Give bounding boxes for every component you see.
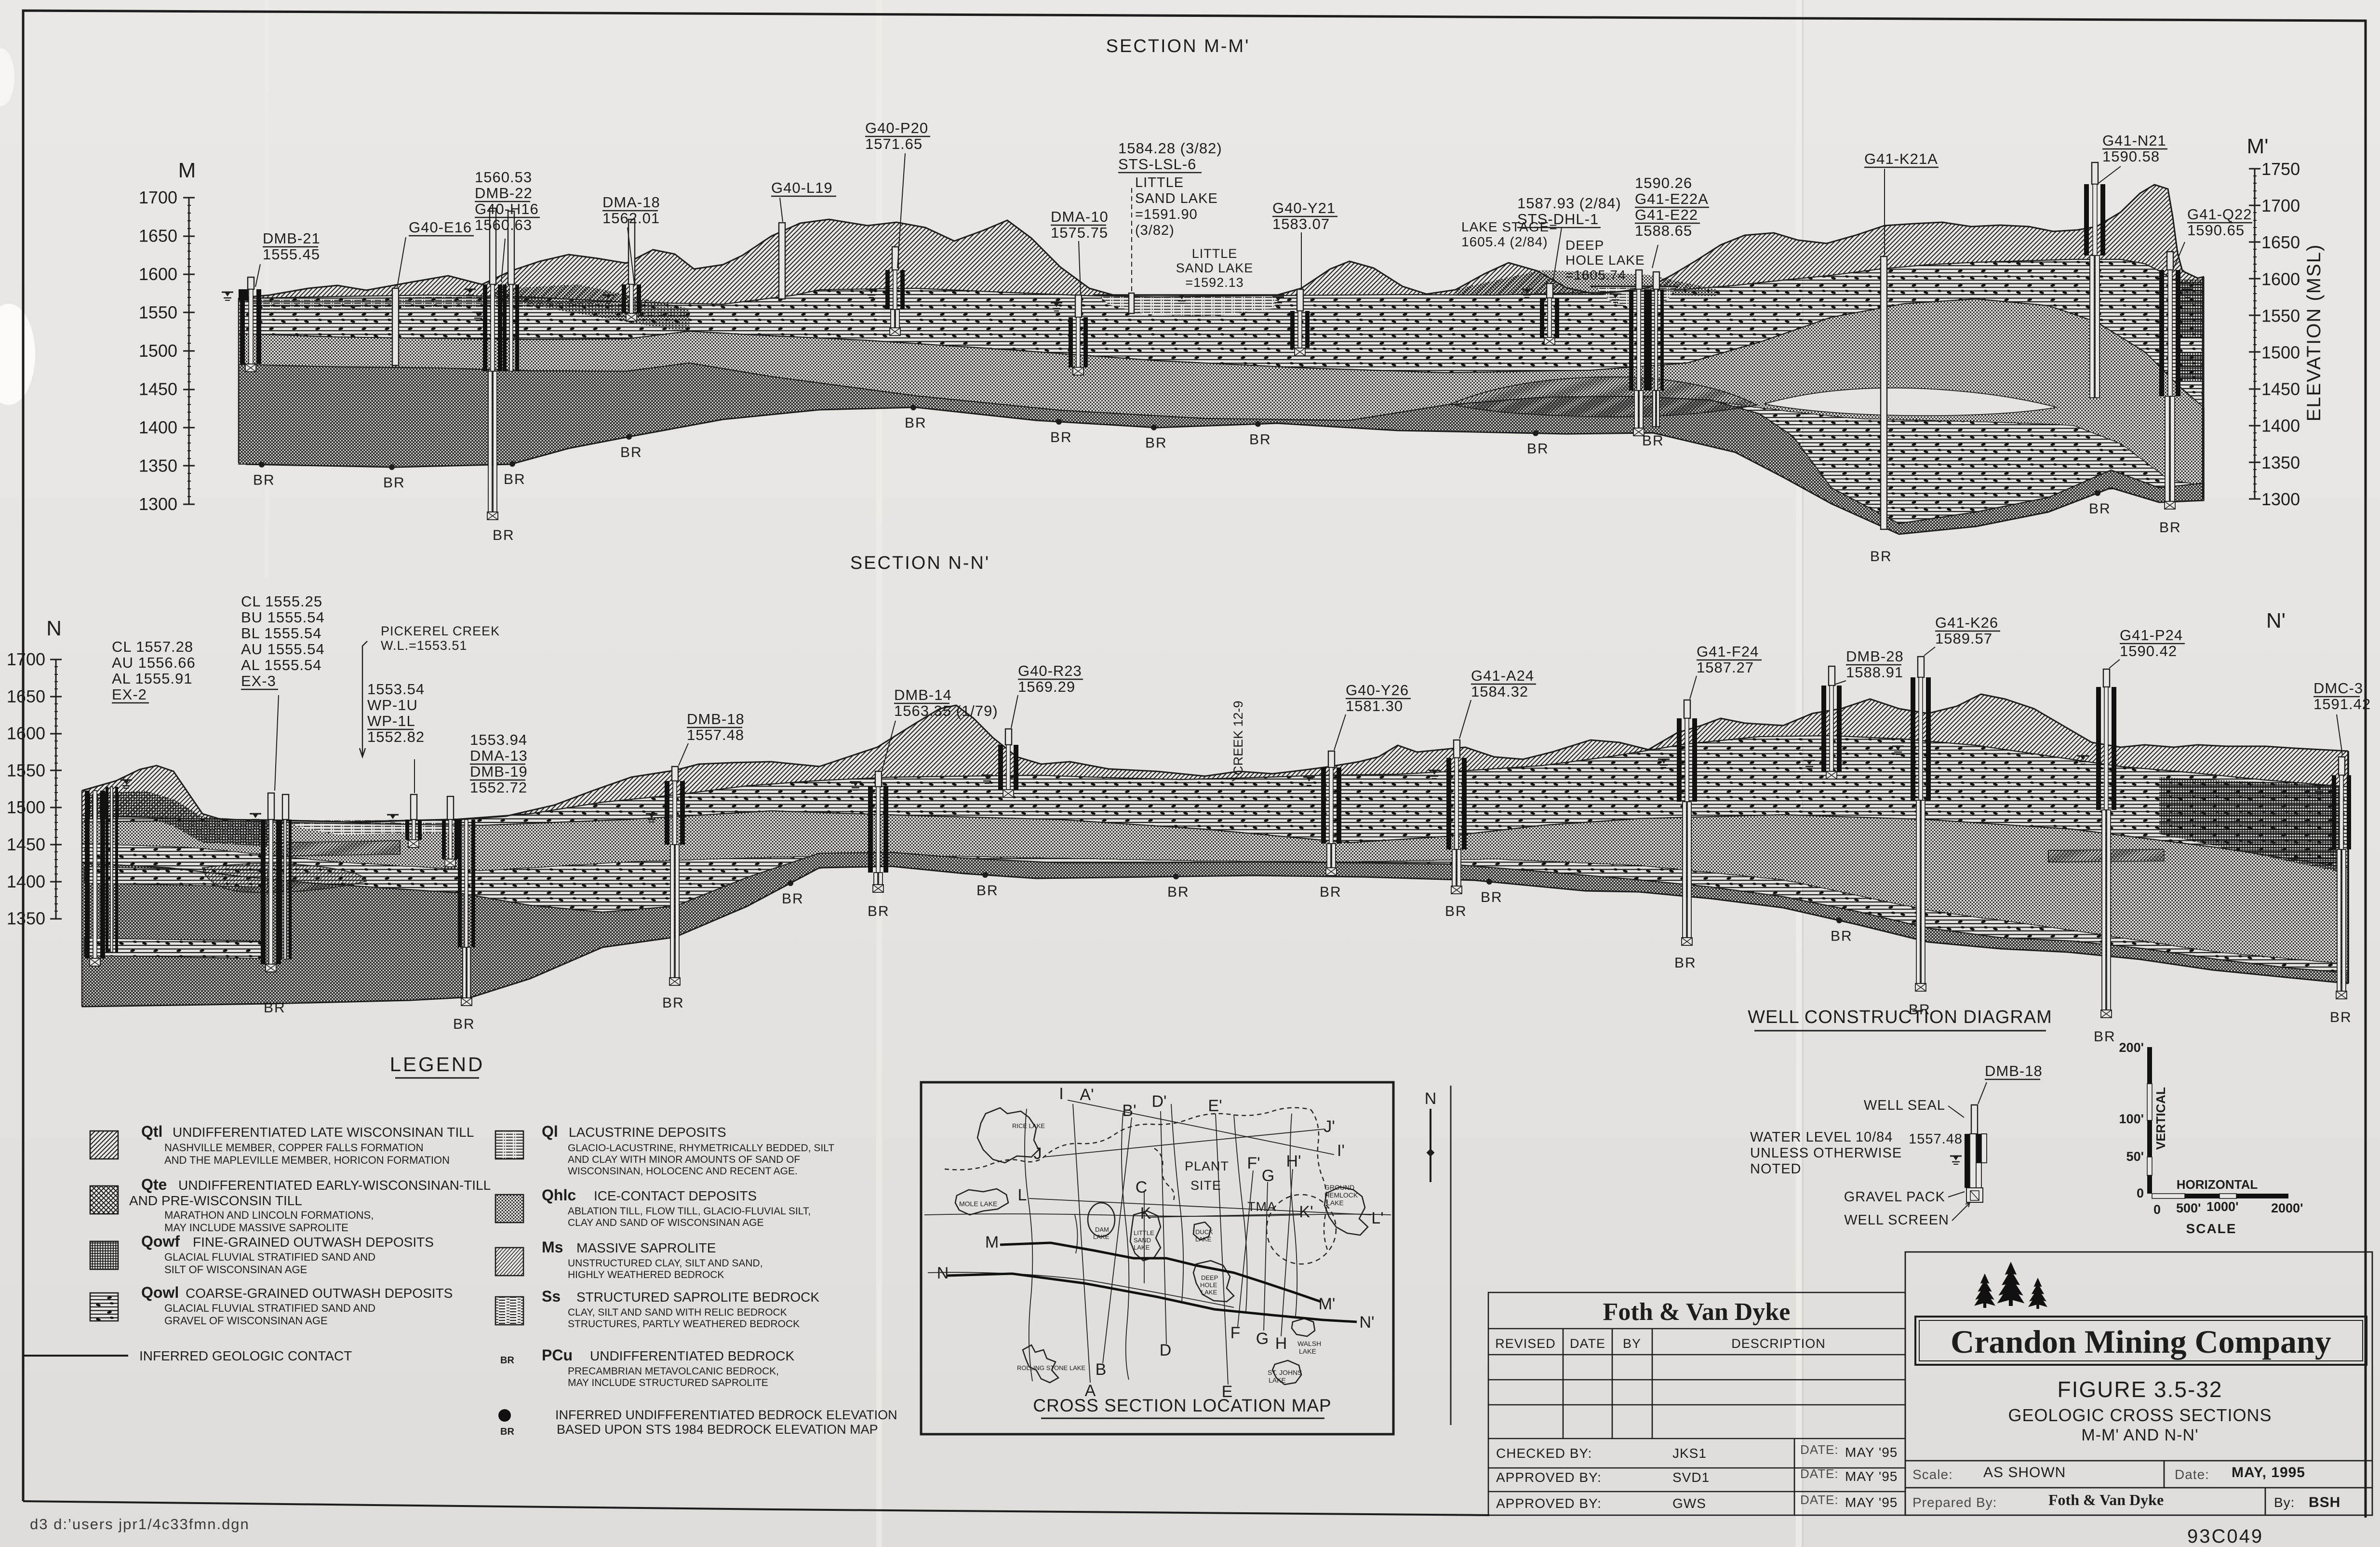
svg-text:1589.57: 1589.57 xyxy=(1935,630,1992,647)
svg-text:1583.07: 1583.07 xyxy=(1272,215,1330,232)
svg-text:1562.01: 1562.01 xyxy=(602,210,660,227)
svg-text:BR: BR xyxy=(504,471,526,487)
svg-text:G41-F24: G41-F24 xyxy=(1697,643,1759,660)
svg-text:LACUSTRINE DEPOSITS: LACUSTRINE DEPOSITS xyxy=(569,1125,726,1140)
svg-text:WATER LEVEL 10/84: WATER LEVEL 10/84 xyxy=(1750,1130,1893,1145)
svg-text:BR: BR xyxy=(253,472,275,488)
svg-text:BR: BR xyxy=(1249,431,1271,447)
svg-text:DATE:: DATE: xyxy=(1800,1442,1839,1457)
svg-text:NASHVILLE MEMBER, COPPER FALLS: NASHVILLE MEMBER, COPPER FALLS FORMATION xyxy=(164,1142,424,1154)
svg-text:By:: By: xyxy=(2274,1495,2295,1510)
svg-text:BR: BR xyxy=(1674,955,1697,971)
svg-text:1581.30: 1581.30 xyxy=(1346,698,1403,714)
svg-text:CHECKED BY:: CHECKED BY: xyxy=(1496,1446,1592,1461)
svg-text:STS-DHL-1: STS-DHL-1 xyxy=(1517,211,1599,228)
svg-text:1400: 1400 xyxy=(7,872,45,891)
svg-text:DUCK: DUCK xyxy=(1195,1228,1213,1236)
svg-text:JKS1: JKS1 xyxy=(1672,1446,1707,1461)
svg-text:RICE LAKE: RICE LAKE xyxy=(1012,1122,1045,1130)
svg-text:200': 200' xyxy=(2119,1040,2144,1055)
svg-text:M: M xyxy=(178,159,196,182)
svg-text:STRUCTURED SAPROLITE BEDROCK: STRUCTURED SAPROLITE BEDROCK xyxy=(576,1290,819,1305)
svg-text:HEMLOCK: HEMLOCK xyxy=(1324,1191,1358,1199)
svg-text:BR: BR xyxy=(1870,549,1892,565)
svg-text:HOLE LAKE: HOLE LAKE xyxy=(1565,253,1645,268)
svg-text:BR: BR xyxy=(2089,501,2111,517)
svg-text:1590.42: 1590.42 xyxy=(2120,643,2177,659)
svg-text:BR: BR xyxy=(1445,903,1467,919)
svg-text:0: 0 xyxy=(2153,1202,2161,1217)
svg-text:G40-P20: G40-P20 xyxy=(865,120,928,136)
svg-text:D: D xyxy=(1160,1341,1172,1359)
svg-text:1450: 1450 xyxy=(139,379,177,399)
svg-text:2000': 2000' xyxy=(2271,1201,2303,1215)
svg-text:DESCRIPTION: DESCRIPTION xyxy=(1731,1336,1826,1351)
svg-text:LAKE: LAKE xyxy=(1093,1233,1110,1240)
svg-text:1571.65: 1571.65 xyxy=(865,135,923,152)
svg-text:BR: BR xyxy=(383,475,405,491)
svg-text:BU 1555.54: BU 1555.54 xyxy=(241,609,325,626)
svg-text:DMA-13: DMA-13 xyxy=(470,747,528,764)
svg-text:1605.4 (2/84): 1605.4 (2/84) xyxy=(1461,234,1548,249)
svg-text:I': I' xyxy=(1337,1142,1345,1160)
svg-text:1552.72: 1552.72 xyxy=(470,779,527,796)
svg-text:GEOLOGIC CROSS SECTIONS: GEOLOGIC CROSS SECTIONS xyxy=(2008,1405,2272,1425)
svg-text:=1605.74: =1605.74 xyxy=(1565,268,1626,282)
svg-text:G41-A24: G41-A24 xyxy=(1471,667,1534,684)
svg-text:WISCONSINAN, HOLOCENC AND RECE: WISCONSINAN, HOLOCENC AND RECENT AGE. xyxy=(568,1166,798,1177)
svg-text:GLACIAL FLUVIAL STRATIFIED SAN: GLACIAL FLUVIAL STRATIFIED SAND AND xyxy=(164,1302,375,1314)
svg-text:(3/82): (3/82) xyxy=(1135,223,1175,238)
svg-text:1588.65: 1588.65 xyxy=(1635,222,1692,239)
svg-text:SECTION M-M': SECTION M-M' xyxy=(1106,36,1250,56)
svg-text:SVD1: SVD1 xyxy=(1672,1470,1710,1485)
svg-text:1700: 1700 xyxy=(7,649,45,669)
svg-text:ICE-CONTACT DEPOSITS: ICE-CONTACT DEPOSITS xyxy=(594,1188,757,1203)
svg-text:LAKE: LAKE xyxy=(1134,1244,1150,1251)
svg-text:G: G xyxy=(1262,1167,1274,1185)
svg-text:HOLE: HOLE xyxy=(1200,1281,1217,1289)
svg-text:COARSE-GRAINED OUTWASH DEPOSIT: COARSE-GRAINED OUTWASH DEPOSITS xyxy=(186,1286,453,1301)
svg-text:50': 50' xyxy=(2126,1149,2144,1164)
svg-text:REVISED: REVISED xyxy=(1495,1336,1556,1351)
svg-text:G40-E16: G40-E16 xyxy=(409,219,472,236)
svg-text:L': L' xyxy=(1371,1209,1383,1227)
svg-text:BR: BR xyxy=(2094,1029,2116,1045)
svg-text:1650: 1650 xyxy=(139,226,177,246)
svg-text:CL 1557.28: CL 1557.28 xyxy=(112,638,193,655)
svg-text:1590.26: 1590.26 xyxy=(1635,175,1692,191)
svg-text:1590.58: 1590.58 xyxy=(2102,148,2160,165)
svg-text:DEEP: DEEP xyxy=(1201,1274,1218,1281)
svg-text:1557.48: 1557.48 xyxy=(687,726,744,743)
svg-text:1550: 1550 xyxy=(2261,306,2300,325)
svg-text:MAY '95: MAY '95 xyxy=(1845,1469,1898,1484)
svg-text:B': B' xyxy=(1122,1102,1136,1120)
svg-text:ELEVATION (MSL): ELEVATION (MSL) xyxy=(2303,244,2325,422)
svg-text:MAY INCLUDE MASSIVE SAPROLITE: MAY INCLUDE MASSIVE SAPROLITE xyxy=(164,1222,348,1234)
svg-text:1553.94: 1553.94 xyxy=(470,731,527,748)
svg-text:BR: BR xyxy=(2159,520,2181,536)
svg-text:WELL SCREEN: WELL SCREEN xyxy=(1844,1212,1949,1228)
svg-text:BR: BR xyxy=(1167,884,1190,900)
svg-text:SAND: SAND xyxy=(1134,1237,1151,1244)
svg-text:I: I xyxy=(1059,1085,1063,1103)
svg-text:AND CLAY WITH MINOR AMOUNTS OF: AND CLAY WITH MINOR AMOUNTS OF SAND OF xyxy=(568,1154,800,1165)
svg-text:HIGHLY WEATHERED BEDROCK: HIGHLY WEATHERED BEDROCK xyxy=(568,1269,724,1280)
svg-text:MOLE LAKE: MOLE LAKE xyxy=(959,1200,997,1208)
svg-text:DMB-18: DMB-18 xyxy=(1985,1063,2043,1079)
svg-text:Crandon Mining Company: Crandon Mining Company xyxy=(1951,1323,2331,1360)
svg-text:BR: BR xyxy=(493,527,515,543)
svg-text:A': A' xyxy=(1080,1086,1094,1104)
svg-text:SCALE: SCALE xyxy=(2186,1221,2237,1236)
svg-text:LITTLE: LITTLE xyxy=(1135,175,1184,190)
svg-text:BR: BR xyxy=(1050,430,1072,445)
svg-text:0: 0 xyxy=(2137,1186,2144,1200)
svg-text:FINE-GRAINED OUTWASH DEPOSITS: FINE-GRAINED OUTWASH DEPOSITS xyxy=(193,1235,434,1250)
svg-text:1450: 1450 xyxy=(2261,379,2300,399)
svg-text:N: N xyxy=(937,1264,949,1282)
svg-text:AS SHOWN: AS SHOWN xyxy=(1983,1465,2066,1480)
svg-text:LITTLE: LITTLE xyxy=(1192,246,1238,261)
svg-text:DMB-21: DMB-21 xyxy=(263,230,321,247)
svg-text:Foth & Van Dyke: Foth & Van Dyke xyxy=(2048,1491,2164,1508)
svg-text:GLACIAL FLUVIAL STRATIFIED SAN: GLACIAL FLUVIAL STRATIFIED SAND AND xyxy=(164,1251,375,1263)
svg-text:1553.54: 1553.54 xyxy=(367,681,425,698)
svg-text:WELL CONSTRUCTION DIAGRAM: WELL CONSTRUCTION DIAGRAM xyxy=(1748,1007,2052,1027)
svg-text:MAY '95: MAY '95 xyxy=(1845,1495,1898,1510)
svg-text:GRAVEL PACK: GRAVEL PACK xyxy=(1844,1189,1945,1205)
svg-text:LAKE: LAKE xyxy=(1195,1236,1212,1243)
svg-text:DMC-3: DMC-3 xyxy=(2313,680,2363,697)
svg-text:APPROVED BY:: APPROVED BY: xyxy=(1496,1470,1602,1485)
svg-text:CREEK 12-9: CREEK 12-9 xyxy=(1231,700,1245,775)
svg-text:G40-R23: G40-R23 xyxy=(1018,662,1082,679)
svg-text:Ql: Ql xyxy=(542,1123,558,1140)
svg-text:PCu: PCu xyxy=(542,1346,573,1364)
svg-text:PLANT: PLANT xyxy=(1185,1159,1229,1173)
svg-text:FIGURE 3.5-32: FIGURE 3.5-32 xyxy=(2058,1377,2223,1402)
svg-text:BR: BR xyxy=(2330,1009,2352,1025)
svg-text:L: L xyxy=(1018,1186,1027,1204)
svg-text:E: E xyxy=(1222,1383,1233,1401)
svg-text:AU 1555.54: AU 1555.54 xyxy=(241,641,325,658)
svg-text:BR: BR xyxy=(453,1016,475,1032)
svg-text:MASSIVE SAPROLITE: MASSIVE SAPROLITE xyxy=(576,1240,716,1255)
svg-text:d3 d:’users jpr1/4c33fmn.dgn: d3 d:’users jpr1/4c33fmn.dgn xyxy=(30,1516,250,1533)
svg-text:G41-Q22: G41-Q22 xyxy=(2187,206,2252,223)
svg-text:G41-K26: G41-K26 xyxy=(1935,614,1998,631)
svg-text:1584.32: 1584.32 xyxy=(1471,683,1528,700)
svg-text:ST. JOHNS: ST. JOHNS xyxy=(1268,1369,1302,1376)
svg-text:BR: BR xyxy=(500,1426,514,1437)
svg-text:STRUCTURES, PARTLY WEATHERED B: STRUCTURES, PARTLY WEATHERED BEDROCK xyxy=(568,1318,800,1330)
svg-text:BR: BR xyxy=(500,1355,514,1366)
svg-text:CL 1555.25: CL 1555.25 xyxy=(241,593,322,610)
svg-text:VERTICAL: VERTICAL xyxy=(2153,1087,2168,1150)
svg-text:1569.29: 1569.29 xyxy=(1018,678,1075,695)
svg-text:G41-E22: G41-E22 xyxy=(1635,206,1698,223)
svg-text:93C049: 93C049 xyxy=(2187,1526,2263,1547)
svg-text:DMB-18: DMB-18 xyxy=(687,711,745,727)
svg-text:1560.53: 1560.53 xyxy=(475,169,532,186)
svg-text:UNSTRUCTURED CLAY, SILT AND SA: UNSTRUCTURED CLAY, SILT AND SAND, xyxy=(568,1258,763,1269)
svg-text:GRAVEL OF WISCONSINAN AGE: GRAVEL OF WISCONSINAN AGE xyxy=(164,1315,328,1327)
svg-text:500': 500' xyxy=(2176,1201,2201,1215)
svg-text:BR: BR xyxy=(905,415,927,431)
svg-text:N: N xyxy=(1425,1090,1437,1108)
svg-text:1350: 1350 xyxy=(139,456,177,476)
svg-text:DMA-10: DMA-10 xyxy=(1051,208,1109,225)
svg-text:1700: 1700 xyxy=(2261,196,2300,215)
svg-text:C: C xyxy=(1136,1178,1148,1197)
svg-text:1500: 1500 xyxy=(139,341,177,361)
svg-text:BR: BR xyxy=(868,903,890,919)
svg-text:G40-H16: G40-H16 xyxy=(475,201,539,217)
svg-text:DAM: DAM xyxy=(1095,1226,1109,1233)
svg-text:1000': 1000' xyxy=(2206,1199,2239,1214)
svg-text:M': M' xyxy=(1319,1295,1336,1313)
svg-text:NOTED: NOTED xyxy=(1750,1161,1802,1177)
svg-text:1590.65: 1590.65 xyxy=(2187,222,2245,239)
svg-text:BR: BR xyxy=(1527,441,1549,457)
svg-text:MAY, 1995: MAY, 1995 xyxy=(2232,1465,2305,1480)
svg-text:M: M xyxy=(985,1233,999,1251)
svg-text:EX-3: EX-3 xyxy=(241,673,276,689)
svg-text:1575.75: 1575.75 xyxy=(1051,224,1108,241)
svg-text:BY: BY xyxy=(1623,1336,1641,1351)
svg-text:1563.35 (1/79): 1563.35 (1/79) xyxy=(894,702,998,719)
svg-text:G41-N21: G41-N21 xyxy=(2102,132,2166,149)
svg-text:1400: 1400 xyxy=(139,417,177,437)
svg-text:BR: BR xyxy=(1320,884,1342,900)
svg-text:1587.27: 1587.27 xyxy=(1697,659,1754,676)
svg-text:Qhlc: Qhlc xyxy=(542,1186,576,1204)
svg-text:MAY INCLUDE STRUCTURED SAPROLI: MAY INCLUDE STRUCTURED SAPROLITE xyxy=(568,1377,768,1388)
svg-text:1550: 1550 xyxy=(139,303,177,323)
svg-text:K': K' xyxy=(1299,1203,1313,1221)
svg-text:1600: 1600 xyxy=(2261,269,2300,289)
svg-text:G40-Y21: G40-Y21 xyxy=(1272,200,1336,216)
svg-text:N: N xyxy=(46,617,62,640)
svg-text:1550: 1550 xyxy=(7,760,45,780)
svg-text:1300: 1300 xyxy=(139,494,177,514)
svg-text:APPROVED BY:: APPROVED BY: xyxy=(1496,1496,1602,1511)
svg-text:BR: BR xyxy=(782,891,804,907)
svg-text:1500: 1500 xyxy=(7,797,45,817)
svg-text:SITE: SITE xyxy=(1190,1178,1221,1193)
svg-text:Qowf: Qowf xyxy=(141,1233,180,1250)
svg-text:1557.48: 1557.48 xyxy=(1909,1131,1963,1147)
svg-text:LITTLE: LITTLE xyxy=(1134,1229,1154,1237)
svg-text:1350: 1350 xyxy=(7,909,45,928)
svg-text:1591.42: 1591.42 xyxy=(2313,696,2371,713)
svg-text:1650: 1650 xyxy=(7,686,45,706)
svg-text:GLACIO-LACUSTRINE, RHYMETRICAL: GLACIO-LACUSTRINE, RHYMETRICALLY BEDDED,… xyxy=(568,1143,834,1154)
svg-text:PICKEREL CREEK: PICKEREL CREEK xyxy=(381,624,500,638)
svg-text:INFERRED UNDIFFERENTIATED BEDR: INFERRED UNDIFFERENTIATED BEDROCK ELEVAT… xyxy=(555,1408,897,1422)
svg-text:J: J xyxy=(1034,1144,1042,1163)
svg-text:LAKE: LAKE xyxy=(1201,1289,1217,1296)
svg-text:INFERRED GEOLOGIC CONTACT: INFERRED GEOLOGIC CONTACT xyxy=(139,1348,352,1363)
svg-text:Qte: Qte xyxy=(141,1176,167,1193)
svg-text:BR: BR xyxy=(976,883,999,899)
svg-text:SECTION N-N': SECTION N-N' xyxy=(850,553,990,573)
svg-text:SAND LAKE: SAND LAKE xyxy=(1176,261,1254,275)
svg-text:GWS: GWS xyxy=(1672,1496,1706,1511)
svg-text:GROUND: GROUND xyxy=(1324,1184,1354,1191)
svg-text:BR: BR xyxy=(1145,435,1167,451)
svg-text:CLAY, SILT AND SAND WITH RELIC: CLAY, SILT AND SAND WITH RELIC BEDROCK xyxy=(568,1307,787,1318)
svg-text:F: F xyxy=(1230,1324,1241,1342)
svg-text:1587.93 (2/84): 1587.93 (2/84) xyxy=(1517,195,1621,212)
svg-text:EX-2: EX-2 xyxy=(112,686,147,703)
svg-text:LAKE: LAKE xyxy=(1269,1376,1286,1384)
svg-text:1552.82: 1552.82 xyxy=(367,728,425,745)
svg-text:1450: 1450 xyxy=(7,834,45,854)
svg-text:M': M' xyxy=(2246,135,2268,158)
svg-text:WP-1U: WP-1U xyxy=(367,697,418,713)
svg-text:BL 1555.54: BL 1555.54 xyxy=(241,625,321,642)
svg-text:G40-L19: G40-L19 xyxy=(771,179,833,196)
svg-text:100': 100' xyxy=(2119,1112,2144,1126)
svg-text:1588.91: 1588.91 xyxy=(1846,664,1903,681)
svg-text:1650: 1650 xyxy=(2261,232,2300,252)
svg-text:W.L.=1553.51: W.L.=1553.51 xyxy=(381,638,467,653)
svg-text:BR: BR xyxy=(264,1000,286,1016)
svg-text:DMB-19: DMB-19 xyxy=(470,763,528,780)
svg-text:A: A xyxy=(1085,1382,1096,1400)
svg-text:BR: BR xyxy=(620,444,642,460)
svg-text:=1592.13: =1592.13 xyxy=(1185,275,1243,290)
svg-text:WALSH: WALSH xyxy=(1297,1340,1321,1347)
svg-text:G41-P24: G41-P24 xyxy=(2120,627,2183,644)
svg-text:DATE:: DATE: xyxy=(1800,1493,1839,1507)
svg-text:AU 1556.66: AU 1556.66 xyxy=(112,654,196,671)
svg-text:1584.28 (3/82): 1584.28 (3/82) xyxy=(1118,140,1222,157)
svg-text:TMA: TMA xyxy=(1247,1199,1276,1214)
svg-text:1600: 1600 xyxy=(7,724,45,743)
svg-text:1400: 1400 xyxy=(2261,416,2300,436)
svg-text:1500: 1500 xyxy=(2261,343,2300,363)
svg-text:Ms: Ms xyxy=(542,1238,563,1256)
svg-text:DMA-18: DMA-18 xyxy=(602,194,660,211)
svg-text:UNDIFFERENTIATED LATE WISCONSI: UNDIFFERENTIATED LATE WISCONSINAN TILL xyxy=(173,1125,474,1140)
svg-text:MARATHON AND LINCOLN FORMATION: MARATHON AND LINCOLN FORMATIONS, xyxy=(164,1209,374,1221)
svg-text:AL 1555.54: AL 1555.54 xyxy=(241,657,321,673)
svg-text:CLAY AND SAND OF WISCONSINAN A: CLAY AND SAND OF WISCONSINAN AGE xyxy=(568,1217,763,1228)
svg-text:=1591.90: =1591.90 xyxy=(1135,207,1198,222)
svg-text:1750: 1750 xyxy=(2261,159,2300,179)
svg-text:G: G xyxy=(1256,1330,1269,1348)
svg-text:SAND LAKE: SAND LAKE xyxy=(1135,191,1218,206)
svg-text:Date:: Date: xyxy=(2175,1467,2209,1482)
svg-text:G41-E22A: G41-E22A xyxy=(1635,190,1709,207)
svg-text:H': H' xyxy=(1286,1152,1301,1170)
svg-text:LAKE: LAKE xyxy=(1326,1199,1344,1207)
svg-text:G41-K21A: G41-K21A xyxy=(1864,150,1938,167)
svg-text:ABLATION TILL, FLOW TILL, GLAC: ABLATION TILL, FLOW TILL, GLACIO-FLUVIAL… xyxy=(568,1206,811,1217)
svg-text:1560.63: 1560.63 xyxy=(475,216,532,233)
svg-text:BASED UPON STS 1984 BEDROCK EL: BASED UPON STS 1984 BEDROCK ELEVATION MA… xyxy=(557,1422,878,1437)
svg-text:LEGEND: LEGEND xyxy=(390,1053,485,1076)
svg-text:N': N' xyxy=(1359,1313,1374,1332)
svg-text:Ss: Ss xyxy=(542,1288,561,1305)
svg-text:J': J' xyxy=(1324,1117,1335,1136)
svg-text:1600: 1600 xyxy=(139,264,177,284)
svg-text:UNDIFFERENTIATED EARLY-WISCONS: UNDIFFERENTIATED EARLY-WISCONSINAN-TILL xyxy=(178,1178,491,1193)
svg-text:UNLESS OTHERWISE: UNLESS OTHERWISE xyxy=(1750,1145,1902,1161)
svg-text:AL 1555.91: AL 1555.91 xyxy=(112,670,192,687)
svg-text:B: B xyxy=(1096,1360,1107,1379)
svg-text:F': F' xyxy=(1247,1154,1260,1172)
svg-text:UNDIFFERENTIATED BEDROCK: UNDIFFERENTIATED BEDROCK xyxy=(590,1348,794,1363)
svg-text:WP-1L: WP-1L xyxy=(367,713,415,729)
svg-text:DMB-28: DMB-28 xyxy=(1846,648,1904,665)
svg-text:N': N' xyxy=(2266,609,2286,632)
svg-text:Scale:: Scale: xyxy=(1912,1467,1953,1482)
svg-text:BR: BR xyxy=(1481,889,1503,905)
svg-text:Qowl: Qowl xyxy=(141,1284,179,1301)
svg-text:DATE:: DATE: xyxy=(1800,1466,1839,1481)
svg-text:Foth & Van Dyke: Foth & Van Dyke xyxy=(1603,1298,1791,1326)
svg-text:Qtl: Qtl xyxy=(141,1123,162,1140)
svg-text:DEEP: DEEP xyxy=(1565,238,1604,253)
svg-text:1350: 1350 xyxy=(2261,453,2300,472)
svg-text:1700: 1700 xyxy=(139,188,177,207)
svg-text:1555.45: 1555.45 xyxy=(263,246,320,263)
svg-text:DMB-22: DMB-22 xyxy=(475,185,533,202)
svg-text:ROLLING STONE LAKE: ROLLING STONE LAKE xyxy=(1017,1364,1085,1372)
svg-text:CROSS SECTION LOCATION MAP: CROSS SECTION LOCATION MAP xyxy=(1033,1396,1331,1415)
svg-text:K: K xyxy=(1140,1204,1151,1223)
svg-text:D': D' xyxy=(1151,1092,1166,1111)
svg-text:DATE: DATE xyxy=(1570,1336,1605,1351)
svg-text:1300: 1300 xyxy=(2261,489,2300,509)
svg-text:H: H xyxy=(1275,1334,1287,1353)
svg-text:LAKE: LAKE xyxy=(1299,1347,1316,1355)
svg-text:HORIZONTAL: HORIZONTAL xyxy=(2177,1177,2258,1192)
svg-text:BR: BR xyxy=(1831,928,1853,944)
svg-text:PRECAMBRIAN METAVOLCANIC BEDRO: PRECAMBRIAN METAVOLCANIC BEDROCK, xyxy=(568,1366,779,1377)
svg-text:M-M' AND N-N': M-M' AND N-N' xyxy=(2081,1426,2198,1444)
svg-text:SILT OF WISCONSINAN AGE: SILT OF WISCONSINAN AGE xyxy=(164,1264,307,1276)
svg-text:MAY '95: MAY '95 xyxy=(1845,1445,1898,1460)
svg-text:AND THE MAPLEVILLE MEMBER, HOR: AND THE MAPLEVILLE MEMBER, HORICON FORMA… xyxy=(164,1154,450,1166)
svg-text:DMB-14: DMB-14 xyxy=(894,686,952,703)
svg-text:BSH: BSH xyxy=(2309,1494,2340,1510)
svg-text:BR: BR xyxy=(662,995,684,1011)
svg-text:E': E' xyxy=(1208,1097,1222,1115)
svg-text:AND PRE-WISCONSIN TILL: AND PRE-WISCONSIN TILL xyxy=(129,1193,302,1208)
svg-text:WELL SEAL: WELL SEAL xyxy=(1864,1098,1945,1113)
svg-text:G40-Y26: G40-Y26 xyxy=(1346,682,1409,699)
svg-text:STS-LSL-6: STS-LSL-6 xyxy=(1118,156,1196,173)
svg-text:BR: BR xyxy=(1642,433,1664,449)
svg-text:Prepared By:: Prepared By: xyxy=(1912,1495,1997,1510)
